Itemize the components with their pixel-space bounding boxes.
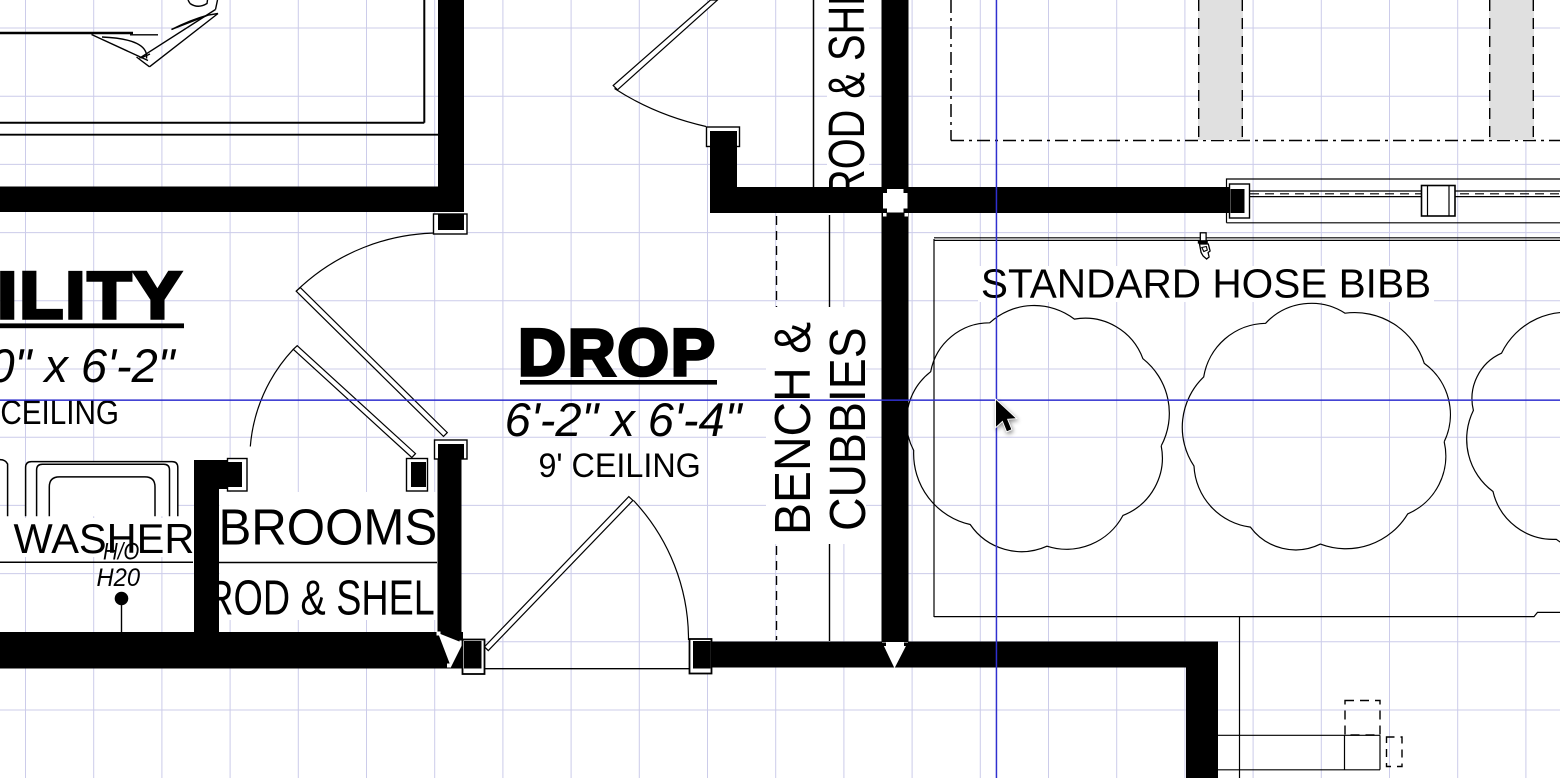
- svg-text:DROP: DROP: [518, 315, 717, 389]
- svg-text:H20: H20: [97, 564, 141, 592]
- svg-text:6'-0" x 6'-2": 6'-0" x 6'-2": [0, 339, 177, 392]
- svg-text:6'-2" x 6'-4": 6'-2" x 6'-4": [505, 393, 744, 446]
- svg-text:UTILITY: UTILITY: [0, 259, 183, 333]
- svg-text:ROD & SHELF: ROD & SHELF: [818, 0, 875, 198]
- svg-text:H/O: H/O: [103, 538, 139, 565]
- svg-text:STANDARD HOSE BIBB: STANDARD HOSE BIBB: [981, 260, 1431, 306]
- svg-text:ROD & SHELF: ROD & SHELF: [206, 571, 458, 626]
- svg-text:CUBBIES: CUBBIES: [820, 327, 876, 531]
- svg-text:BROOMS: BROOMS: [218, 499, 437, 556]
- svg-text:BENCH &: BENCH &: [765, 322, 822, 535]
- svg-text:9' CEILING: 9' CEILING: [0, 393, 119, 432]
- svg-text:9' CEILING: 9' CEILING: [538, 447, 700, 485]
